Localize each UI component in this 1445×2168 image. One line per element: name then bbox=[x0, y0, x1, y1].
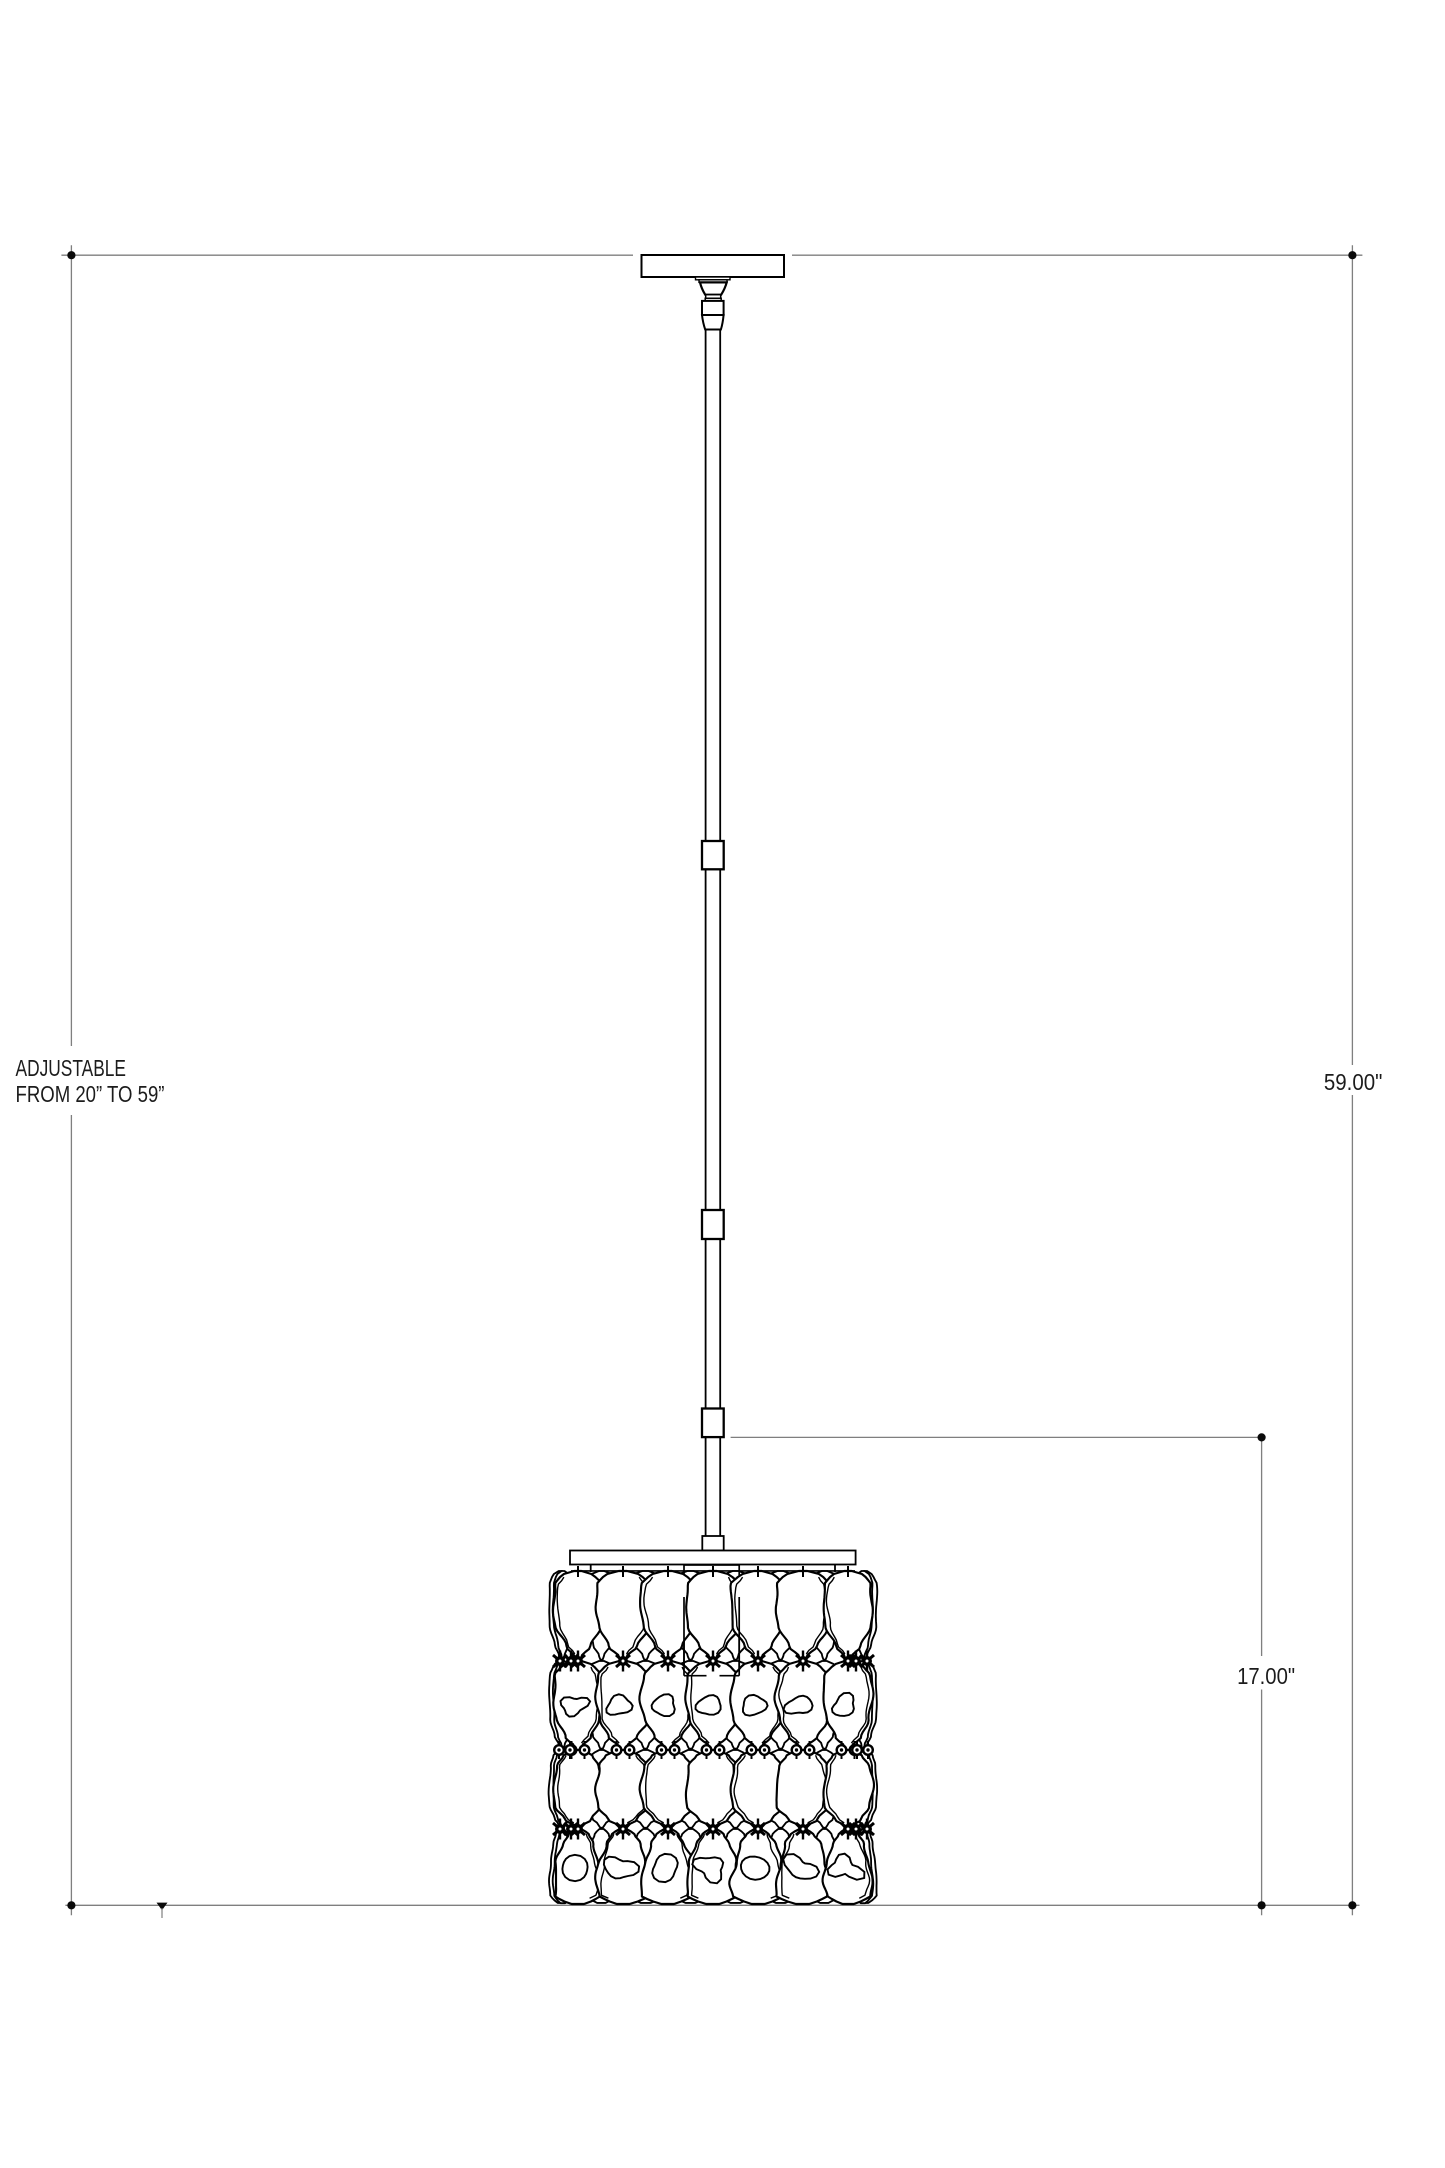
svg-text:ADJUSTABLE: ADJUSTABLE bbox=[16, 1055, 127, 1081]
svg-text:59.00": 59.00" bbox=[1324, 1069, 1383, 1095]
svg-text:17.00": 17.00" bbox=[1237, 1663, 1295, 1689]
svg-text:FROM 20” TO 59”: FROM 20” TO 59” bbox=[16, 1081, 165, 1107]
